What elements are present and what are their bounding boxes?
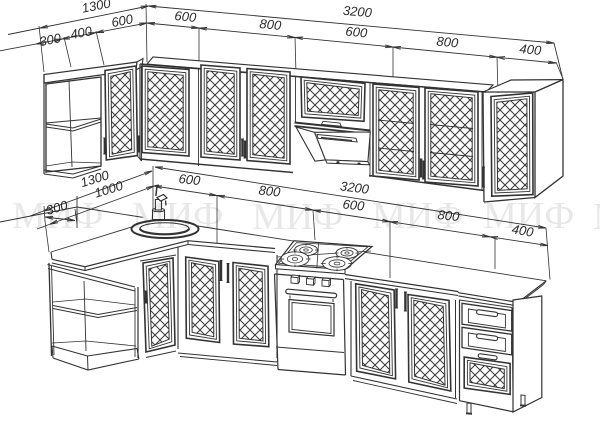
svg-text:МИФ: МИФ <box>593 196 600 238</box>
svg-text:МИФ: МИФ <box>372 195 463 237</box>
svg-text:3200: 3200 <box>342 3 373 21</box>
svg-text:МИФ: МИФ <box>252 196 343 238</box>
svg-text:600: 600 <box>345 24 369 41</box>
svg-text:МИФ: МИФ <box>12 195 103 237</box>
svg-text:600: 600 <box>178 171 202 188</box>
svg-text:800: 800 <box>259 16 283 33</box>
svg-text:800: 800 <box>436 34 460 51</box>
svg-text:МИФ: МИФ <box>483 195 574 237</box>
svg-text:МИФ: МИФ <box>132 195 223 237</box>
svg-text:400: 400 <box>519 41 543 58</box>
svg-text:600: 600 <box>342 196 366 213</box>
svg-text:600: 600 <box>174 8 198 25</box>
